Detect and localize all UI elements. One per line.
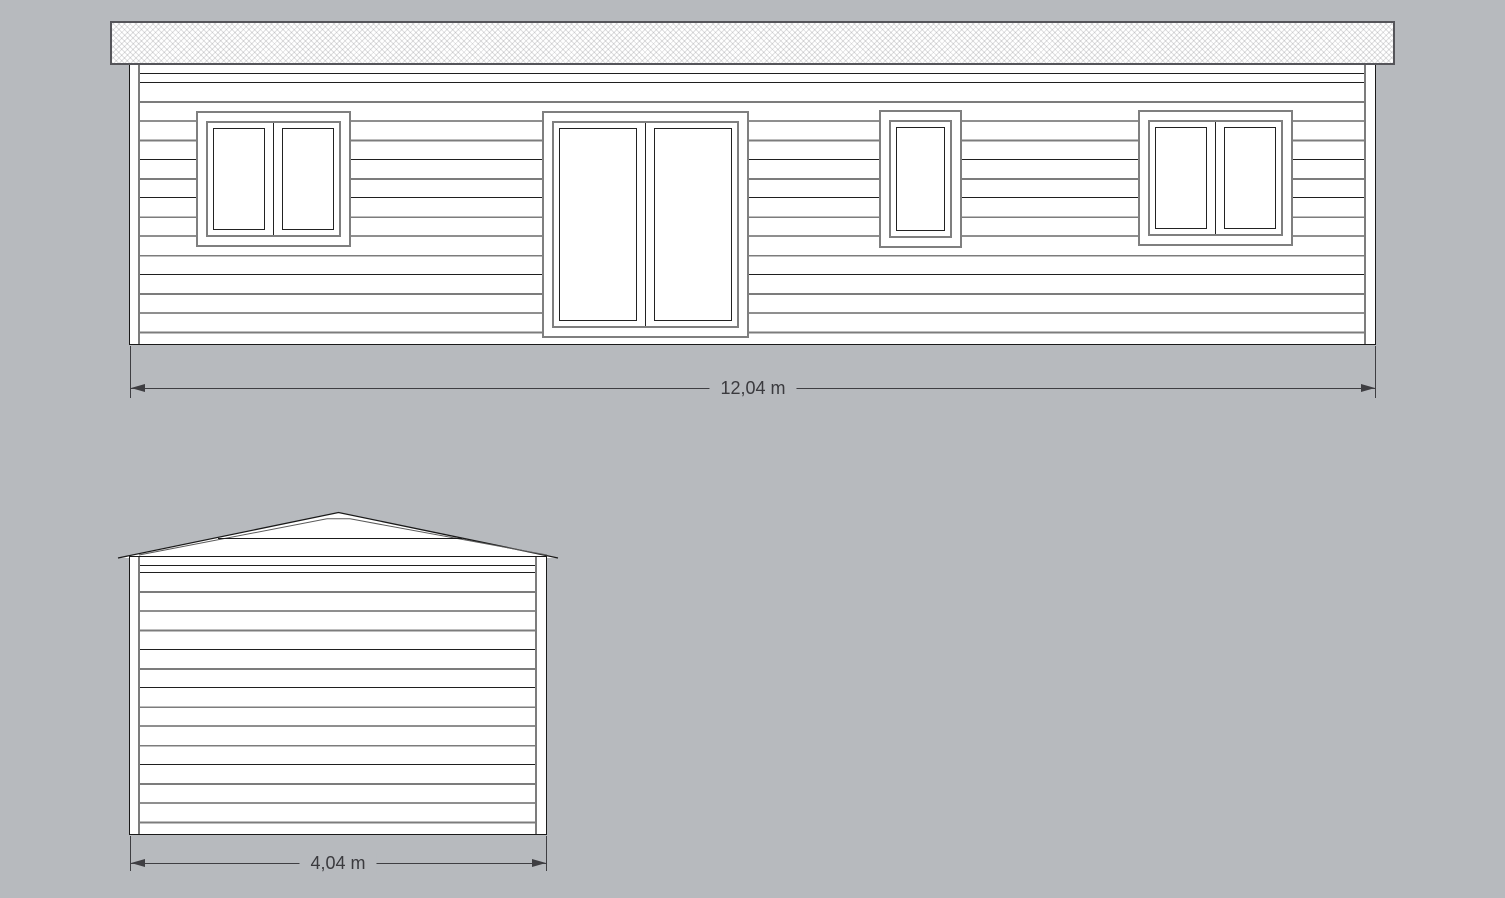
window-sash: [896, 127, 945, 231]
dimension-arrow-right-icon: [1361, 384, 1375, 392]
window-sash: [213, 128, 265, 230]
door-leaf: [559, 128, 637, 321]
window-mullion: [1215, 122, 1216, 234]
single-window: [879, 110, 962, 248]
window-frame: [1148, 120, 1283, 236]
corner-trim-right: [535, 557, 537, 834]
corner-trim-left: [138, 557, 140, 834]
gable-wall: [129, 556, 547, 835]
window-sash: [1155, 127, 1207, 229]
dimension-arrow-right-icon: [532, 859, 546, 867]
door-mullion: [645, 123, 646, 326]
double-window-left: [196, 111, 351, 247]
gable-roof: [100, 505, 570, 560]
window-sash: [282, 128, 334, 230]
dimension-extension-right: [546, 836, 547, 871]
window-frame: [206, 121, 341, 237]
dimension-arrow-left-icon: [131, 384, 145, 392]
corner-trim-left: [138, 65, 140, 344]
dimension-label-length: 12,04 m: [709, 378, 796, 399]
dimension-arrow-left-icon: [131, 859, 145, 867]
door-leaves: [559, 128, 732, 321]
window-glazing: [896, 127, 945, 231]
corner-trim-right: [1364, 65, 1366, 344]
window-sash: [1224, 127, 1276, 229]
double-window-right: [1138, 110, 1293, 246]
roof-fascia: [110, 21, 1395, 65]
window-mullion: [273, 123, 274, 235]
door-frame: [552, 121, 739, 328]
dimension-extension-right: [1375, 346, 1376, 398]
window-frame: [889, 120, 952, 238]
double-door: [542, 111, 749, 338]
wall-siding: [140, 557, 535, 833]
window-glazing: [1155, 127, 1276, 229]
door-leaf: [654, 128, 732, 321]
dimension-label-width: 4,04 m: [299, 853, 376, 874]
drawing-canvas: 12,04 m 4,04 m: [0, 0, 1505, 898]
window-glazing: [213, 128, 334, 230]
